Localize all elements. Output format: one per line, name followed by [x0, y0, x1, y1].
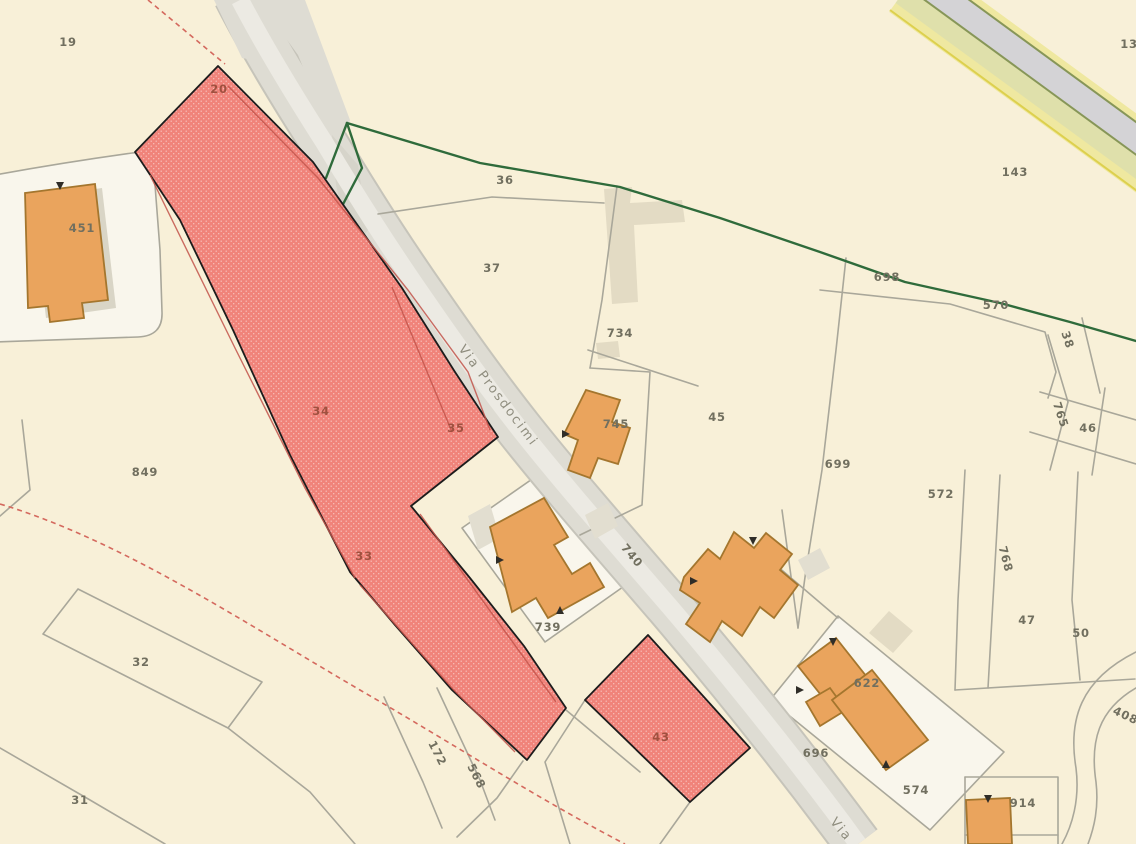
parcel-label-34: 34 — [312, 404, 330, 418]
parcel-label-45: 45 — [708, 410, 726, 424]
parcel-label-20: 20 — [210, 82, 228, 96]
parcel-label-698: 698 — [874, 270, 900, 284]
parcel-label-13: 13 — [1120, 37, 1136, 51]
parcel-label-19: 19 — [59, 35, 77, 49]
parcel-label-745: 745 — [603, 417, 629, 431]
parcel-label-699: 699 — [825, 457, 851, 471]
parcel-label-914: 914 — [1010, 796, 1036, 810]
parcel-label-46: 46 — [1079, 421, 1097, 435]
parcel-label-143: 143 — [1002, 165, 1028, 179]
parcel-label-451: 451 — [69, 221, 95, 235]
parcel-label-696: 696 — [803, 746, 829, 760]
parcel-label-47: 47 — [1018, 613, 1036, 627]
building-914 — [966, 798, 1012, 844]
parcel-label-849: 849 — [132, 465, 158, 479]
parcel-label-574: 574 — [903, 783, 929, 797]
parcel-label-31: 31 — [71, 793, 89, 807]
parcel-label-37: 37 — [483, 261, 501, 275]
parcel-label-622: 622 — [854, 676, 880, 690]
parcel-label-570: 570 — [983, 298, 1009, 312]
parcel-label-739: 739 — [535, 620, 561, 634]
parcel-label-572: 572 — [928, 487, 954, 501]
cadastral-map-viewport[interactable]: 1913143451363773474545698570387654669957… — [0, 0, 1136, 844]
parcel-label-36: 36 — [496, 173, 514, 187]
cadastral-map[interactable]: 1913143451363773474545698570387654669957… — [0, 0, 1136, 844]
parcel-label-43: 43 — [652, 730, 670, 744]
parcel-label-33: 33 — [355, 549, 373, 563]
parcel-label-32: 32 — [132, 655, 150, 669]
parcel-label-50: 50 — [1072, 626, 1090, 640]
building-451 — [25, 184, 108, 322]
parcel-label-734: 734 — [607, 326, 633, 340]
parcel-label-35: 35 — [447, 421, 465, 435]
